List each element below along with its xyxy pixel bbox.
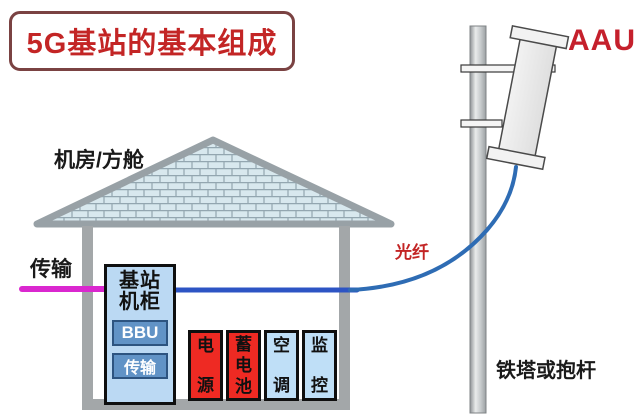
transmission-module: 传输 — [112, 353, 168, 379]
title-box: 5G基站的基本组成 — [9, 11, 295, 71]
shelter-left-wall — [82, 226, 93, 406]
tower-pole — [470, 26, 486, 413]
aau-body — [498, 39, 556, 158]
page-title: 5G基站的基本组成 — [27, 20, 278, 62]
bbu-module: BBU — [112, 320, 168, 346]
aircon-char: 调 — [273, 377, 290, 394]
battery-char: 池 — [235, 378, 252, 395]
battery-char: 蓄 — [235, 336, 252, 353]
cabinet-name-line1: 基站 — [107, 271, 173, 292]
cabinet-name-line2: 机柜 — [107, 292, 173, 313]
fiber-cable-curve — [350, 167, 516, 290]
power-char: 电 — [197, 337, 214, 354]
shelter-right-wall — [339, 226, 350, 406]
tower-label: 铁塔或抱杆 — [496, 360, 596, 382]
aircon-char: 空 — [273, 337, 290, 354]
monitor-char: 监 — [311, 337, 328, 354]
aau-lower-bracket — [461, 120, 502, 127]
room-label: 机房/方舱 — [54, 149, 144, 172]
monitoring-box: 监 控 — [302, 330, 337, 401]
air-conditioner-box: 空 调 — [264, 330, 299, 401]
base-station-cabinet: 基站 机柜 BBU 传输 — [104, 264, 176, 405]
transmission-label: 传输 — [30, 258, 72, 281]
aau-unit — [487, 26, 569, 169]
monitor-char: 控 — [311, 377, 328, 394]
battery-box: 蓄 电 池 — [226, 330, 261, 401]
battery-char: 电 — [235, 357, 252, 374]
cabinet-name: 基站 机柜 — [107, 271, 173, 313]
transmission-module-label: 传输 — [124, 354, 156, 378]
bbu-module-label: BBU — [122, 323, 159, 343]
diagram-5g-base-station: 5G基站的基本组成 AAU 机房/方舱 传输 光纤 铁塔或抱杆 基站 机柜 BB… — [0, 0, 640, 417]
power-char: 源 — [197, 377, 214, 394]
fiber-label: 光纤 — [395, 244, 429, 263]
power-supply-box: 电 源 — [188, 330, 223, 401]
aau-label: AAU — [568, 24, 636, 57]
